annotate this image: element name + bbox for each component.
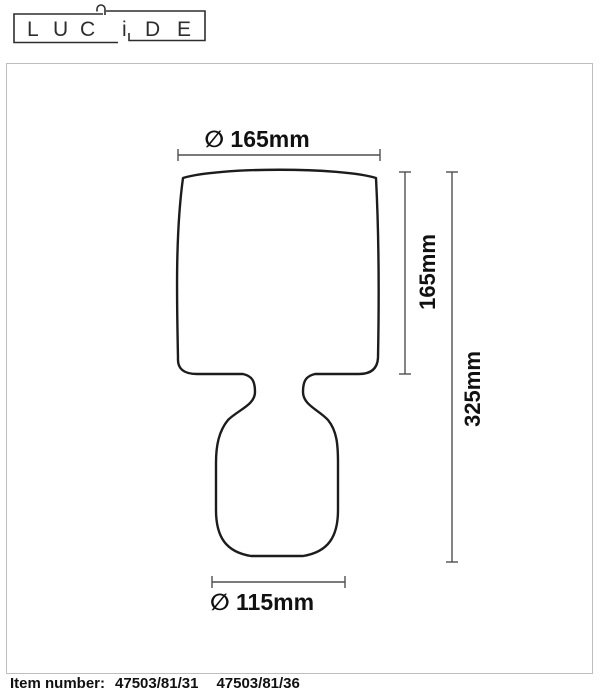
dimension-base-diameter <box>212 576 345 588</box>
item-number-value: 47503/81/36 <box>216 675 299 692</box>
lamp-outline <box>177 170 379 556</box>
top-diameter-label: ∅ 165mm <box>204 126 309 152</box>
dimension-total-height <box>446 172 458 562</box>
shade-height-label: 165mm <box>415 234 440 310</box>
logo-letters: L U C i D E <box>27 18 191 41</box>
technical-drawing: ∅ 165mm 165mm 325mm ∅ 115mm <box>7 64 592 673</box>
item-number-value: 47503/81/31 <box>115 675 198 692</box>
drawing-area: ∅ 165mm 165mm 325mm ∅ 115mm <box>6 63 593 674</box>
logo-letter: E <box>177 18 191 41</box>
logo-letter: D <box>145 18 160 41</box>
logo-letter: i <box>122 18 127 41</box>
item-number-row: Item number: 47503/81/31 47503/81/36 <box>10 675 318 692</box>
logo-letter: L <box>27 18 39 41</box>
logo-letter: C <box>80 18 95 41</box>
item-number-label: Item number: <box>10 675 105 692</box>
logo-letter: U <box>53 18 68 41</box>
lucide-logo: L U C i D E <box>12 1 212 47</box>
total-height-label: 325mm <box>460 351 485 427</box>
dimension-shade-height <box>399 172 411 374</box>
lucide-logo-graphic: L U C i D E <box>12 1 212 47</box>
base-diameter-label: ∅ 115mm <box>210 589 314 615</box>
